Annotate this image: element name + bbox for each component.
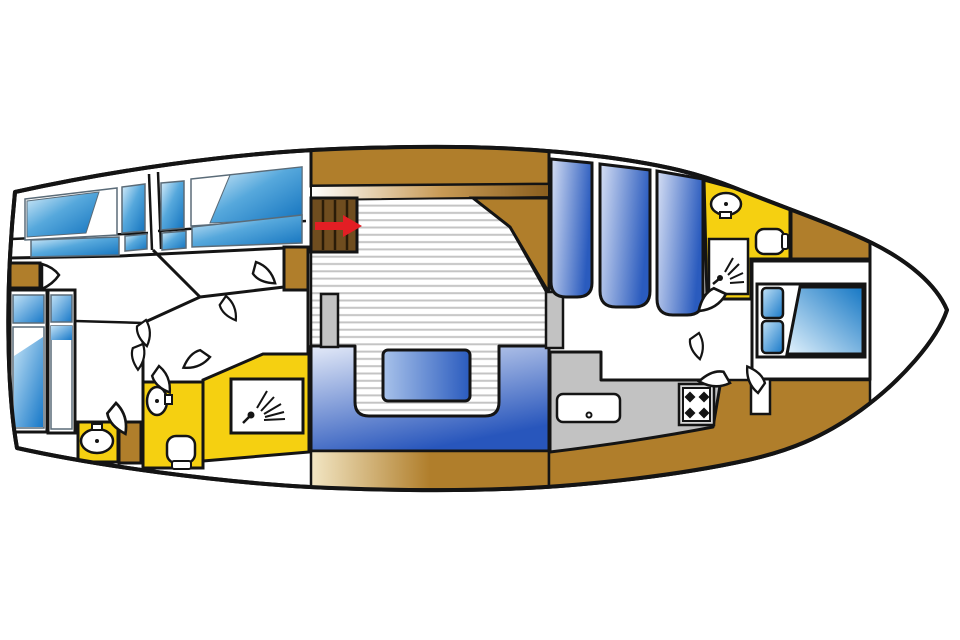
- aft-head-toilet: [167, 436, 195, 463]
- fwd-head-sink-drain: [724, 202, 728, 206]
- berth-cushion-3: [657, 171, 703, 315]
- aft-head-small-sink-drain: [95, 439, 99, 443]
- fwd-head-toilet-tank: [782, 234, 788, 249]
- stern-locker-1-top: [13, 295, 44, 323]
- coachroof-band: [311, 145, 549, 186]
- fwd-bed-pillow-2: [762, 321, 783, 353]
- fwd-shower-spray-4: [730, 282, 744, 283]
- aft-head-mid-sink-drain: [155, 399, 159, 403]
- fwd-head-sink-tap: [720, 212, 731, 218]
- hull-shelf-band: [311, 451, 549, 490]
- fwd-bed-blanket: [787, 287, 863, 354]
- yacht-floorplan: [0, 0, 960, 640]
- yacht-floorplan-canvas: [0, 0, 960, 640]
- aft-window-2: [122, 184, 145, 233]
- aft-window-7: [162, 231, 186, 250]
- salon-table: [383, 350, 470, 401]
- aft-head-small-sink-tap: [92, 424, 102, 430]
- aft-cabinet-port: [10, 263, 40, 288]
- fwd-bed-pillow-1: [762, 288, 783, 318]
- aft-head-toilet-tank: [172, 461, 191, 469]
- stern-locker-2-sill: [51, 326, 72, 340]
- berth-cushion-2: [600, 164, 650, 307]
- salon-partition-stbd: [546, 292, 563, 348]
- aft-window-5: [31, 237, 119, 257]
- aft-window-6: [125, 234, 147, 251]
- stern-locker-2-top: [51, 295, 72, 322]
- aft-window-3: [161, 181, 184, 230]
- aft-cabinet-stbd: [284, 247, 308, 290]
- fwd-head-toilet: [756, 229, 784, 254]
- salon-partition-port: [321, 294, 338, 347]
- berth-cushion-1: [551, 159, 592, 297]
- aft-head-mid-sink-tap: [165, 395, 172, 404]
- stern-locker-2-door: [51, 326, 72, 429]
- aft-shower-spray-5: [264, 419, 285, 420]
